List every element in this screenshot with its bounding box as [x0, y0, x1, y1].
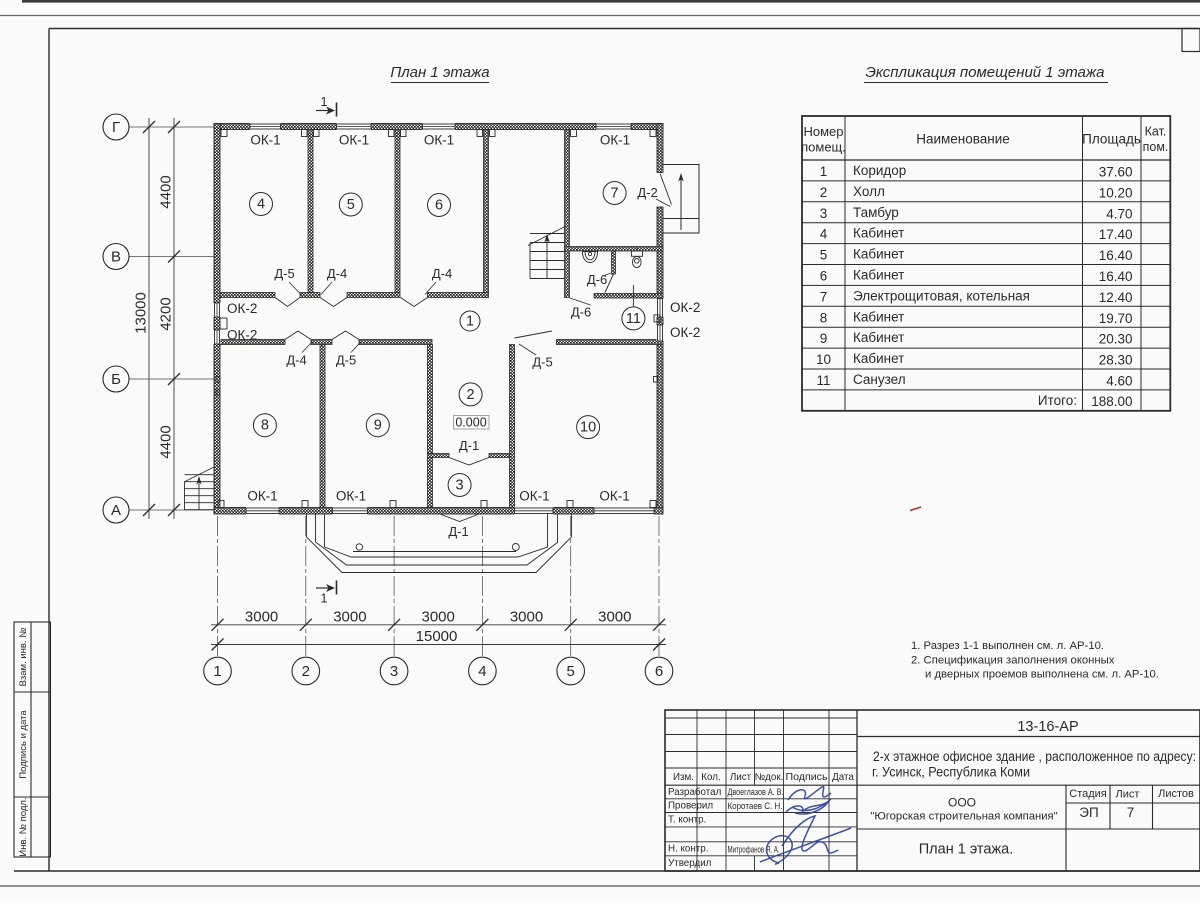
svg-text:Митрофанов Я. А.: Митрофанов Я. А. [728, 845, 780, 855]
svg-text:Стадия: Стадия [1069, 788, 1107, 800]
svg-text:4: 4 [257, 197, 265, 213]
svg-text:Лист: Лист [1116, 789, 1140, 801]
svg-text:пом.: пом. [1143, 140, 1169, 154]
svg-text:Кабинет: Кабинет [853, 351, 904, 366]
svg-text:12.40: 12.40 [1099, 290, 1133, 305]
svg-text:13-16-АР: 13-16-АР [1017, 719, 1078, 735]
svg-text:г. Усинск, Республика Коми: г. Усинск, Республика Коми [872, 765, 1030, 780]
svg-text:3000: 3000 [422, 608, 455, 625]
svg-text:2: 2 [302, 663, 310, 680]
svg-text:Подпись и дата: Подпись и дата [18, 710, 29, 779]
svg-text:1: 1 [820, 164, 828, 179]
svg-text:Д-1: Д-1 [448, 524, 468, 539]
svg-text:17.40: 17.40 [1099, 227, 1133, 242]
svg-text:10: 10 [580, 420, 596, 436]
svg-text:2: 2 [467, 387, 475, 403]
svg-text:3000: 3000 [510, 608, 543, 625]
svg-text:3000: 3000 [333, 608, 366, 625]
svg-text:8: 8 [820, 310, 828, 325]
svg-text:5: 5 [347, 197, 355, 213]
svg-text:4.60: 4.60 [1106, 374, 1132, 389]
svg-text:и дверных проемов выполнена см: и дверных проемов выполнена см. л. АР-10… [925, 669, 1159, 681]
svg-text:3: 3 [456, 478, 464, 494]
svg-text:Подпись: Подпись [786, 772, 828, 783]
svg-text:Д-5: Д-5 [274, 266, 294, 281]
svg-text:Взам. инв. №: Взам. инв. № [18, 628, 29, 687]
svg-text:Д-1: Д-1 [459, 438, 479, 453]
svg-text:7: 7 [611, 186, 619, 202]
svg-text:1: 1 [321, 592, 328, 606]
svg-text:ОК-2: ОК-2 [227, 301, 257, 316]
svg-text:16.40: 16.40 [1099, 269, 1133, 284]
svg-text:6: 6 [820, 269, 828, 284]
svg-text:План 1 этажа: План 1 этажа [390, 64, 489, 81]
svg-text:13000: 13000 [133, 292, 150, 334]
svg-text:4: 4 [820, 227, 828, 242]
svg-text:2: 2 [820, 185, 828, 200]
svg-text:Д-2: Д-2 [637, 185, 657, 200]
svg-text:Номер: Номер [803, 124, 843, 139]
svg-text:1: 1 [466, 314, 474, 330]
svg-text:5: 5 [820, 248, 828, 263]
svg-text:20.30: 20.30 [1099, 332, 1133, 347]
svg-text:Т. контр.: Т. контр. [668, 815, 706, 826]
svg-text:Кабинет: Кабинет [853, 268, 904, 283]
svg-text:А: А [111, 502, 121, 519]
svg-text:Кат.: Кат. [1145, 125, 1167, 139]
svg-text:Кабинет: Кабинет [853, 330, 904, 345]
svg-text:Итого:: Итого: [1038, 393, 1077, 408]
svg-text:Инв. № подл.: Инв. № подл. [18, 797, 29, 856]
svg-text:ОК-1: ОК-1 [519, 489, 549, 504]
svg-text:ОК-1: ОК-1 [250, 133, 280, 148]
svg-text:6: 6 [655, 663, 663, 680]
svg-text:Коротаев С. Н.: Коротаев С. Н. [728, 801, 783, 811]
svg-text:5: 5 [567, 663, 575, 680]
svg-text:Разработал: Разработал [668, 787, 722, 798]
svg-text:Д-5: Д-5 [532, 355, 552, 370]
svg-text:2-х этажное офисное здание , р: 2-х этажное офисное здание , расположенн… [873, 749, 1196, 764]
svg-text:4.70: 4.70 [1106, 206, 1132, 221]
svg-text:Холл: Холл [853, 184, 885, 199]
svg-text:7: 7 [1127, 805, 1135, 820]
svg-text:Д-4: Д-4 [286, 353, 306, 368]
svg-text:ОК-1: ОК-1 [424, 133, 454, 148]
svg-text:3000: 3000 [245, 608, 278, 625]
svg-text:0.000: 0.000 [455, 416, 486, 430]
svg-text:ОК-2: ОК-2 [227, 328, 257, 343]
svg-text:1: 1 [213, 663, 221, 680]
svg-text:ОК-1: ОК-1 [339, 133, 369, 148]
svg-text:1. Разрез 1-1 выполнен см. л.: 1. Разрез 1-1 выполнен см. л. АР-10. [911, 640, 1104, 652]
svg-text:Кол.: Кол. [701, 772, 720, 783]
svg-text:Двоеглазов А. В.: Двоеглазов А. В. [728, 787, 784, 797]
svg-text:4400: 4400 [158, 425, 175, 458]
svg-text:4400: 4400 [158, 175, 175, 208]
svg-text:Экспликация помещений 1 этажа: Экспликация помещений 1 этажа [865, 64, 1104, 81]
svg-text:Утвердил: Утвердил [668, 858, 712, 869]
svg-text:11: 11 [816, 373, 830, 388]
svg-text:В: В [111, 249, 121, 266]
svg-text:Н. контр.: Н. контр. [668, 844, 708, 855]
svg-text:9: 9 [374, 418, 382, 434]
svg-text:4: 4 [478, 663, 486, 680]
svg-text:15000: 15000 [416, 628, 458, 645]
svg-text:3: 3 [390, 663, 398, 680]
svg-text:Наименование: Наименование [916, 132, 1010, 147]
svg-text:ОК-2: ОК-2 [670, 325, 700, 340]
svg-text:37.60: 37.60 [1099, 165, 1133, 180]
svg-text:1: 1 [321, 95, 328, 109]
svg-text:Коридор: Коридор [853, 163, 906, 178]
svg-text:11: 11 [626, 311, 641, 327]
svg-text:188.00: 188.00 [1091, 394, 1132, 409]
svg-text:ОК-1: ОК-1 [599, 489, 629, 504]
svg-text:19.70: 19.70 [1099, 311, 1133, 326]
svg-text:ООО: ООО [948, 796, 976, 810]
svg-text:10.20: 10.20 [1099, 185, 1133, 200]
svg-text:6: 6 [435, 198, 443, 214]
svg-text:ЭП: ЭП [1079, 805, 1098, 820]
svg-text:Д-5: Д-5 [336, 353, 356, 368]
svg-text:Г: Г [112, 119, 120, 136]
svg-text:10: 10 [816, 352, 831, 367]
svg-text:3: 3 [820, 206, 828, 221]
svg-text:Б: Б [111, 371, 121, 388]
svg-text:Проверил: Проверил [668, 801, 713, 812]
svg-text:Площадь: Площадь [1082, 132, 1141, 147]
svg-text:Кабинет: Кабинет [853, 247, 904, 262]
svg-text:Кабинет: Кабинет [853, 226, 904, 241]
svg-text:16.40: 16.40 [1099, 248, 1133, 263]
svg-text:Д-4: Д-4 [432, 266, 452, 281]
svg-text:8: 8 [261, 418, 269, 434]
svg-text:Электрощитовая, котельная: Электрощитовая, котельная [853, 288, 1030, 303]
svg-text:Листов: Листов [1158, 788, 1194, 800]
svg-text:Изм.: Изм. [673, 772, 694, 783]
svg-text:ОК-2: ОК-2 [670, 300, 700, 315]
svg-text:3000: 3000 [598, 608, 631, 625]
svg-text:28.30: 28.30 [1099, 353, 1133, 368]
svg-text:2. Спецификация заполнения око: 2. Спецификация заполнения оконных [911, 655, 1115, 667]
svg-text:Санузел: Санузел [853, 372, 906, 387]
svg-text:4200: 4200 [158, 297, 175, 330]
svg-text:ОК-1: ОК-1 [600, 133, 630, 148]
svg-text:Д-4: Д-4 [327, 266, 347, 281]
svg-text:Дата: Дата [832, 772, 854, 783]
svg-text:Лист: Лист [730, 772, 752, 783]
svg-text:"Югорская строительная компани: "Югорская строительная компания" [870, 811, 1057, 823]
svg-text:7: 7 [820, 289, 828, 304]
svg-text:Тамбур: Тамбур [853, 205, 899, 220]
svg-text:9: 9 [820, 331, 828, 346]
svg-text:План 1 этажа.: План 1 этажа. [919, 842, 1014, 858]
svg-text:Д-6: Д-6 [571, 305, 591, 320]
svg-text:Кабинет: Кабинет [853, 309, 904, 324]
svg-text:помещ.: помещ. [801, 140, 846, 155]
svg-text:Д-6: Д-6 [587, 272, 607, 287]
svg-text:ОК-1: ОК-1 [247, 489, 277, 504]
svg-text:№док.: №док. [755, 772, 784, 783]
svg-text:ОК-1: ОК-1 [336, 489, 366, 504]
